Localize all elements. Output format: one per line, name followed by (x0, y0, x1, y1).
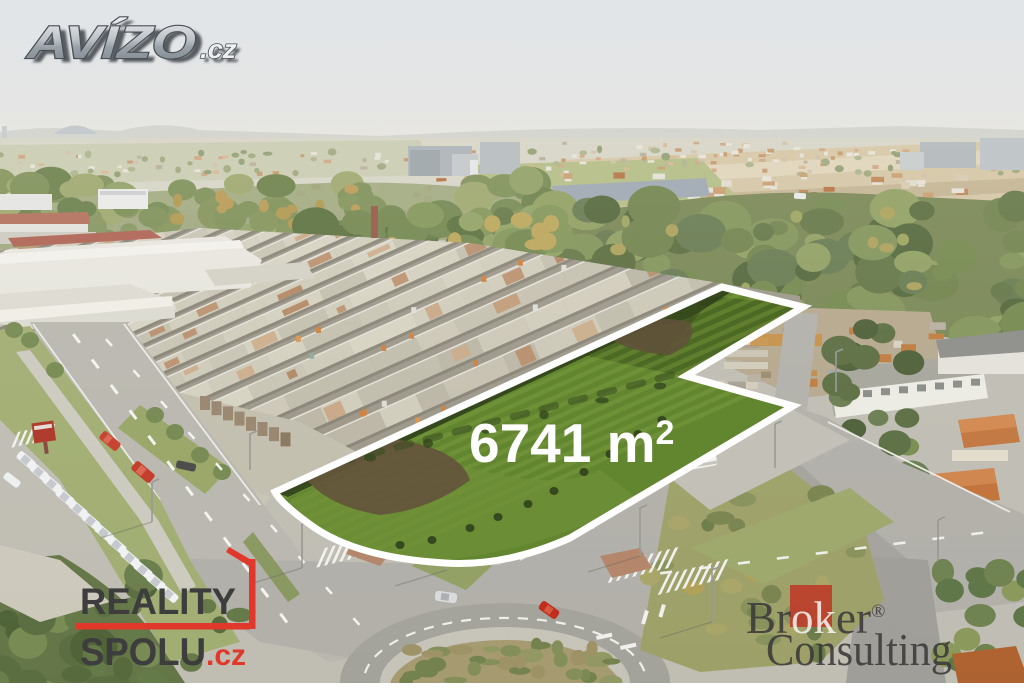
svg-text:SPOLU: SPOLU (80, 631, 206, 674)
svg-text:REALITY: REALITY (80, 581, 236, 622)
svg-text:Consulting: Consulting (766, 624, 952, 675)
svg-text:AVÍZO: AVÍZO (25, 16, 197, 68)
svg-text:.cz: .cz (206, 639, 246, 672)
svg-text:6741 m2: 6741 m2 (469, 412, 674, 474)
svg-text:.cz: .cz (200, 34, 238, 64)
